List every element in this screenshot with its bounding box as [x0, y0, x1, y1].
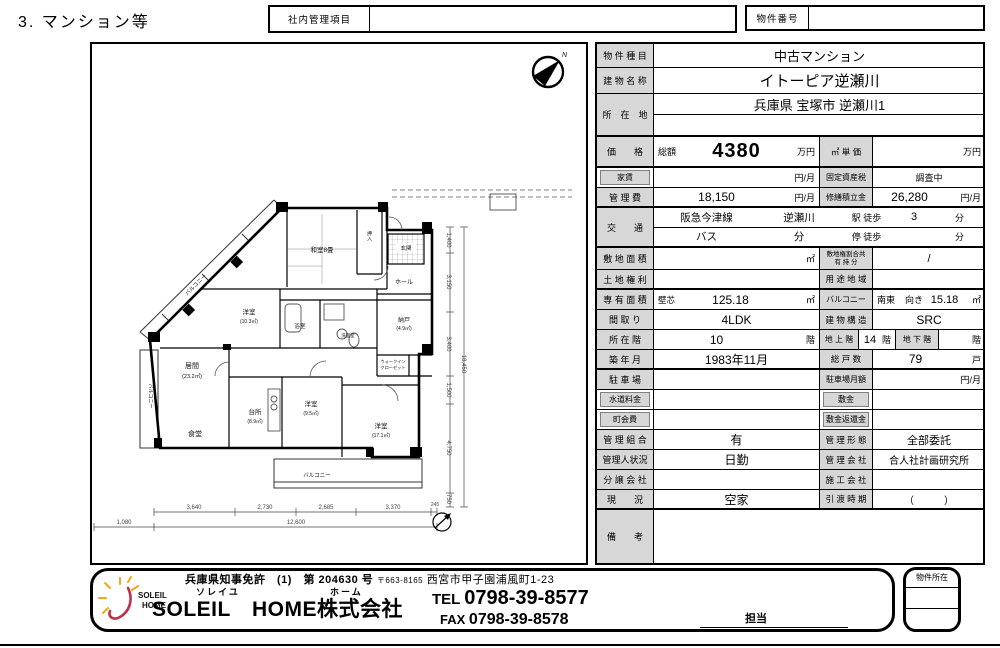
table-label: 駐 車 場 — [597, 370, 654, 389]
internal-management-value — [370, 7, 735, 31]
table-value — [654, 410, 819, 429]
table-row: 町会費敷金返還金 — [597, 410, 983, 430]
table-label: 現 況 — [597, 490, 654, 508]
table-row: 管 理 費18,150円/月修繕積立金26,280円/月 — [597, 188, 983, 208]
svg-text:1,500: 1,500 — [445, 382, 451, 398]
table-value: 壁芯 — [654, 290, 682, 309]
svg-text:4,750: 4,750 — [445, 440, 451, 456]
compass-icon: N — [533, 52, 568, 87]
table-value: 階 — [779, 330, 819, 349]
table-value: 分分 — [934, 208, 985, 246]
table-value: 南東 — [873, 290, 901, 309]
table-value: 26,280 — [873, 188, 946, 206]
table-value: 日勤 — [654, 450, 819, 469]
table-value: （ ） — [873, 490, 985, 508]
table-label: 家賃 — [597, 168, 654, 187]
table-label: 敷金 — [819, 390, 873, 409]
table-label: 敷金返還金 — [819, 410, 873, 429]
table-value — [654, 510, 985, 563]
table-label: 水道料金 — [597, 390, 654, 409]
table-label: 管 理 費 — [597, 188, 654, 206]
table-value: ㎡ — [779, 248, 819, 269]
table-label: 管 理 会 社 — [819, 450, 873, 469]
table-value: 阪急今津線バス — [654, 208, 759, 246]
svg-text:(9.5㎡): (9.5㎡) — [303, 410, 319, 417]
table-row: 所 在 地兵庫県 宝塚市 逆瀬川1 — [597, 94, 983, 137]
fax-number: 0798-39-8578 — [469, 611, 569, 628]
table-value: ㎡ — [964, 290, 985, 309]
table-value: 向き — [901, 290, 925, 309]
property-location-box: 物件所在 — [903, 567, 961, 632]
svg-text:押入: 押入 — [366, 230, 372, 241]
svg-text:ホール: ホール — [395, 279, 413, 286]
table-label: 管理人状況 — [597, 450, 654, 469]
table-label: 地 下 階 — [895, 330, 939, 349]
table-label: 間 取 り — [597, 310, 654, 329]
table-value — [873, 470, 985, 489]
table-value: 円/月 — [946, 188, 985, 206]
table-value: 79 — [873, 350, 958, 368]
table-row: 敷 地 面 積㎡敷地権割合共有 持 分/ — [597, 248, 983, 270]
svg-text:納戸: 納戸 — [398, 316, 410, 324]
table-value — [654, 470, 819, 489]
table-value: 中古マンション — [654, 44, 985, 67]
table-row: 管理人状況日勤管 理 会 社合人社計画研究所 — [597, 450, 983, 470]
table-label: 建 物 構 造 — [819, 310, 873, 329]
svg-text:2,730: 2,730 — [257, 505, 273, 511]
table-label: 所 在 階 — [597, 330, 654, 349]
table-value: 逆瀬川分 — [759, 208, 839, 246]
staff-label: 担当 — [745, 610, 767, 626]
fax-label: FAX — [440, 612, 465, 627]
table-row: 建 物 名 称イトーピア逆瀬川 — [597, 68, 983, 94]
table-row: 管 理 組 合有管 理 形 態全部委託 — [597, 430, 983, 450]
svg-text:洋室: 洋室 — [375, 421, 389, 430]
svg-text:1,400: 1,400 — [445, 232, 451, 248]
table-value: 階 — [961, 330, 985, 349]
table-value: 円/月 — [946, 370, 985, 389]
table-value: 全部委託 — [873, 430, 985, 449]
svg-text:N: N — [562, 52, 568, 59]
table-label: 物 件 種 目 — [597, 44, 654, 67]
company-name: SOLEIL HOME株式会社 — [152, 593, 403, 623]
table-label: 引 渡 時 期 — [819, 490, 873, 508]
table-value: 4380 — [694, 137, 779, 166]
svg-text:3,640: 3,640 — [186, 505, 202, 511]
table-label: 町会費 — [597, 410, 654, 429]
table-value: 兵庫県 宝塚市 逆瀬川1 — [654, 94, 985, 135]
table-value: 合人社計画研究所 — [873, 450, 985, 469]
table-value — [873, 410, 985, 429]
property-number-box: 物件番号 — [745, 5, 985, 31]
tel-number: 0798-39-8577 — [464, 587, 589, 609]
property-location-label: 物件所在 — [906, 570, 958, 587]
svg-text:バルコニー: バルコニー — [303, 472, 330, 479]
svg-text:2,685: 2,685 — [318, 505, 334, 511]
floor-plan: N — [90, 42, 588, 565]
table-label: ㎡ 単 価 — [819, 137, 873, 166]
table-value — [939, 330, 961, 349]
table-label: 専 有 面 積 — [597, 290, 654, 309]
property-location-row — [906, 608, 958, 629]
table-value: 14 — [859, 330, 881, 349]
svg-text:750: 750 — [445, 494, 451, 505]
table-row: 分 譲 会 社施 工 会 社 — [597, 470, 983, 490]
svg-text:ウォークイン: ウォークイン — [380, 358, 405, 365]
property-number-label: 物件番号 — [747, 7, 809, 29]
table-row: 備 考 — [597, 510, 983, 563]
table-row: 物 件 種 目中古マンション — [597, 44, 983, 68]
table-label: 固定資産税 — [819, 168, 873, 187]
staff-underline — [700, 627, 848, 628]
table-label: 施 工 会 社 — [819, 470, 873, 489]
page-title: 3. マンション等 — [18, 8, 150, 32]
table-row: 家賃円/月固定資産税調査中 — [597, 168, 983, 188]
table-row: 築 年 月1983年11月総 戸 数79戸 — [597, 350, 983, 370]
table-value — [873, 270, 985, 288]
table-value: ㎡ — [779, 290, 819, 309]
table-value: 円/月 — [779, 168, 819, 187]
tel-line: TEL 0798-39-8577 — [432, 587, 589, 610]
table-label: 備 考 — [597, 510, 654, 563]
table-value — [654, 270, 819, 288]
svg-text:浴室: 浴室 — [294, 322, 306, 330]
property-location-row — [906, 587, 958, 608]
floor-plan-drawing: N — [92, 44, 586, 563]
table-label: 築 年 月 — [597, 350, 654, 368]
svg-text:クローゼット: クローゼット — [380, 364, 405, 371]
svg-text:(10.3㎡): (10.3㎡) — [240, 318, 258, 325]
table-value: 18,150 — [654, 188, 779, 206]
compass-small-icon — [433, 513, 451, 531]
table-value — [654, 390, 819, 409]
svg-text:12,600: 12,600 — [287, 520, 306, 526]
table-row: 交 通阪急今津線バス逆瀬川分駅 徒歩停 徒歩3分分 — [597, 208, 983, 248]
table-row: 間 取 り4LDK建 物 構 造SRC — [597, 310, 983, 330]
table-label: 土 地 権 利 — [597, 270, 654, 288]
table-value: 15.18 — [925, 290, 964, 309]
table-label: 分 譲 会 社 — [597, 470, 654, 489]
table-label: 用 途 地 域 — [819, 270, 873, 288]
table-label: 建 物 名 称 — [597, 68, 654, 93]
table-label: バルコニー — [819, 290, 873, 309]
table-value: 125.18 — [682, 290, 779, 309]
table-label: 交 通 — [597, 208, 654, 246]
table-value: 調査中 — [873, 168, 985, 187]
table-row: 価 格総額4380万円㎡ 単 価万円 — [597, 137, 983, 168]
svg-text:3,400: 3,400 — [445, 336, 451, 352]
svg-text:18,450: 18,450 — [460, 355, 466, 374]
table-value: / — [873, 248, 985, 269]
svg-text:玄関: 玄関 — [400, 244, 412, 252]
page-bottom-rule — [0, 644, 1000, 646]
table-label: 修繕積立金 — [819, 188, 873, 206]
table-label: 管 理 組 合 — [597, 430, 654, 449]
property-table: 物 件 種 目中古マンション建 物 名 称イトーピア逆瀬川所 在 地兵庫県 宝塚… — [595, 42, 985, 565]
table-row: 所 在 階10階地 上 階14階地 下 階階 — [597, 330, 983, 350]
svg-text:居間: 居間 — [185, 362, 199, 370]
table-value — [873, 137, 946, 166]
table-value: 万円 — [946, 137, 985, 166]
license-line: 兵庫県知事免許 (1) 第 204630 号 〒663-8165 西宮市甲子園浦… — [185, 571, 554, 587]
table-label: 地 上 階 — [819, 330, 859, 349]
table-row: 水道料金敷金 — [597, 390, 983, 410]
svg-text:1,080: 1,080 — [116, 520, 132, 526]
table-value: 階 — [881, 330, 895, 349]
fax-line: FAX 0798-39-8578 — [440, 611, 569, 629]
svg-text:3,370: 3,370 — [385, 505, 401, 511]
internal-management-label: 社内管理項目 — [270, 7, 370, 31]
property-number-value — [809, 7, 983, 29]
table-row: 現 況空家引 渡 時 期（ ） — [597, 490, 983, 510]
svg-text:洗面室: 洗面室 — [341, 332, 355, 339]
table-value — [654, 370, 819, 389]
table-value: 総額 — [654, 137, 694, 166]
table-value — [873, 370, 946, 389]
table-row: 土 地 権 利用 途 地 域 — [597, 270, 983, 290]
table-label: 総 戸 数 — [819, 350, 873, 368]
table-label: 価 格 — [597, 137, 654, 166]
table-label: 駐車場月額 — [819, 370, 873, 389]
svg-text:245: 245 — [431, 502, 440, 508]
company-address: 西宮市甲子園浦風町1-23 — [427, 574, 555, 586]
svg-text:(8.9㎡): (8.9㎡) — [247, 418, 263, 425]
table-value: 4LDK — [654, 310, 819, 329]
svg-text:(17.1㎡): (17.1㎡) — [372, 432, 390, 439]
svg-text:洋室: 洋室 — [243, 307, 257, 316]
svg-text:バルコニー: バルコニー — [147, 384, 153, 409]
svg-text:台所: 台所 — [249, 407, 263, 416]
internal-management-box: 社内管理項目 — [268, 5, 737, 33]
svg-text:洋室: 洋室 — [305, 399, 319, 408]
table-value: 1983年11月 — [654, 350, 819, 368]
table-label: 敷地権割合共有 持 分 — [819, 248, 873, 269]
svg-text:(23.2㎡): (23.2㎡) — [182, 372, 202, 380]
table-value — [873, 390, 985, 409]
table-label: 所 在 地 — [597, 94, 654, 135]
table-value: 有 — [654, 430, 819, 449]
svg-text:和室8畳: 和室8畳 — [310, 245, 334, 254]
table-value: 万円 — [779, 137, 819, 166]
table-value: 円/月 — [779, 188, 819, 206]
svg-text:食堂: 食堂 — [188, 429, 202, 438]
postal-code: 〒663-8165 — [377, 576, 423, 585]
table-value: 3 — [894, 208, 934, 246]
table-value: 戸 — [958, 350, 985, 368]
svg-text:3,150: 3,150 — [445, 274, 451, 290]
table-value — [654, 248, 779, 269]
table-row: 専 有 面 積壁芯125.18㎡バルコニー南東向き15.18㎡ — [597, 290, 983, 310]
table-row: 駐 車 場駐車場月額円/月 — [597, 370, 983, 390]
tel-label: TEL — [432, 591, 460, 608]
table-value: 10 — [654, 330, 779, 349]
table-value — [654, 168, 779, 187]
table-value: 駅 徒歩停 徒歩 — [839, 208, 894, 246]
svg-text:(4.9㎡): (4.9㎡) — [396, 325, 412, 332]
table-value: イトーピア逆瀬川 — [654, 68, 985, 93]
table-value: 空家 — [654, 490, 819, 508]
table-label: 敷 地 面 積 — [597, 248, 654, 269]
table-value: SRC — [873, 310, 985, 329]
table-label: 管 理 形 態 — [819, 430, 873, 449]
